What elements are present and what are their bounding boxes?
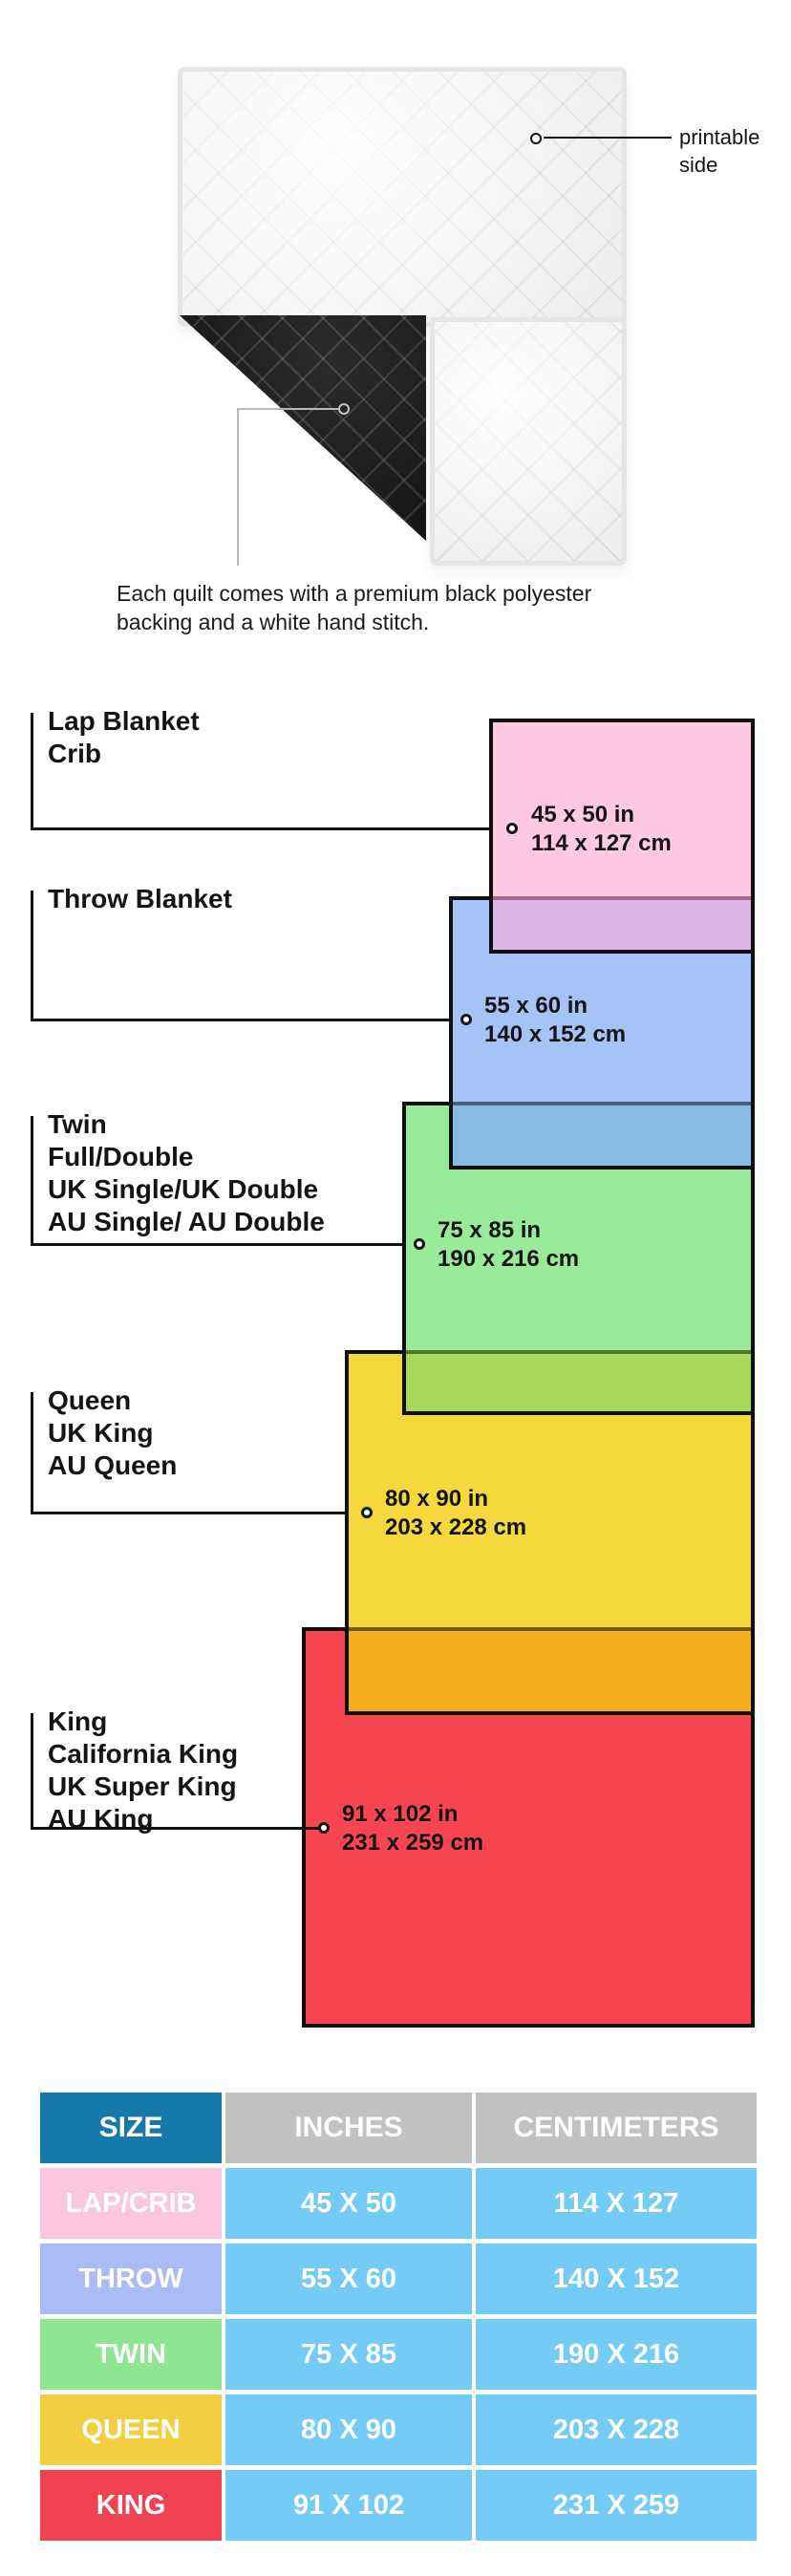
overlap-lap-throw [493,896,751,950]
printable-side-label-line2: side [679,151,759,179]
measure-throw-cm: 140 x 152 cm [484,1020,626,1049]
table-row-throw-size: THROW [40,2243,222,2314]
table-header-inches: INCHES [225,2093,472,2163]
printable-side-callout-line [544,137,672,139]
measure-twin: 75 x 85 in 190 x 216 cm [438,1216,579,1274]
label-twin-line1: Twin [48,1108,325,1141]
measure-king: 91 x 102 in 231 x 259 cm [342,1800,483,1857]
label-king-line3: UK Super King [48,1771,238,1803]
table-row-king-size: KING [40,2470,222,2541]
table-row-throw-inches: 55 X 60 [225,2243,472,2314]
callout-queen-dot-icon [361,1507,373,1518]
label-twin-line2: Full/Double [48,1141,325,1173]
printable-side-label-line1: printable [679,123,759,151]
table-row-twin-size: TWIN [40,2319,222,2390]
label-queen-line1: Queen [48,1385,177,1417]
backing-callout-line-vertical [237,408,239,566]
printable-side-marker-icon [530,133,542,144]
measure-throw: 55 x 60 in 140 x 152 cm [484,992,626,1049]
quilt-front-image [178,67,627,327]
label-throw-line1: Throw Blanket [48,883,232,915]
measure-king-cm: 231 x 259 cm [342,1829,483,1857]
table-row-twin-inches: 75 X 85 [225,2319,472,2390]
measure-king-in: 91 x 102 in [342,1800,483,1829]
callout-twin-vertical [31,1116,33,1243]
table-row-queen-inches: 80 X 90 [225,2394,472,2465]
overlap-twin-queen [406,1350,751,1411]
callout-throw-dot-icon [460,1014,472,1025]
printable-side-label: printable side [679,123,759,179]
callout-throw-horizontal [31,1019,460,1021]
label-lap: Lap Blanket Crib [48,705,200,770]
measure-throw-in: 55 x 60 in [484,992,626,1020]
label-twin: Twin Full/Double UK Single/UK Double AU … [48,1108,325,1238]
label-lap-line2: Crib [48,738,200,770]
callout-king-horizontal [31,1827,318,1830]
label-king-line2: California King [48,1738,238,1771]
backing-caption-line2: backing and a white hand stitch. [117,608,591,636]
callout-lap-horizontal [31,827,506,830]
measure-queen-in: 80 x 90 in [385,1485,526,1513]
callout-king-dot-icon [318,1822,330,1834]
label-king-line1: King [48,1706,238,1738]
label-king: King California King UK Super King AU Ki… [48,1706,238,1835]
callout-queen-vertical [31,1392,33,1512]
overlap-queen-king [349,1627,751,1711]
overlap-throw-twin [453,1102,751,1166]
backing-caption: Each quilt comes with a premium black po… [117,579,591,636]
label-twin-line3: UK Single/UK Double [48,1173,325,1206]
quilt-front-lower-edge [430,317,627,566]
measure-lap: 45 x 50 in 114 x 127 cm [531,801,672,858]
table-header-size: SIZE [40,2093,222,2163]
backing-callout-line-horizontal [238,408,340,410]
table-row-queen-size: QUEEN [40,2394,222,2465]
label-queen-line3: AU Queen [48,1449,177,1482]
callout-throw-vertical [31,891,33,1019]
callout-lap-vertical [31,713,33,828]
label-twin-line4: AU Single/ AU Double [48,1206,325,1238]
table-row-throw-cm: 140 X 152 [476,2243,757,2314]
callout-twin-horizontal [31,1243,414,1246]
table-row-lap-size: LAP/CRIB [40,2168,222,2239]
label-lap-line1: Lap Blanket [48,705,200,738]
table-row-twin-cm: 190 X 216 [476,2319,757,2390]
measure-lap-cm: 114 x 127 cm [531,829,672,858]
measure-queen: 80 x 90 in 203 x 228 cm [385,1485,526,1542]
callout-queen-horizontal [31,1512,361,1514]
callout-twin-dot-icon [414,1238,425,1250]
callout-lap-dot-icon [506,823,518,834]
callout-king-vertical [31,1713,33,1827]
measure-twin-in: 75 x 85 in [438,1216,579,1245]
table-row-king-inches: 91 X 102 [225,2470,472,2541]
backing-caption-line1: Each quilt comes with a premium black po… [117,579,591,608]
measure-queen-cm: 203 x 228 cm [385,1513,526,1542]
label-king-line4: AU King [48,1803,238,1835]
measure-twin-cm: 190 x 216 cm [438,1245,579,1274]
quilt-black-backing-fold [180,315,426,541]
table-row-queen-cm: 203 X 228 [476,2394,757,2465]
label-throw: Throw Blanket [48,883,232,915]
quilt-size-infographic: printable side Each quilt comes with a p… [0,0,791,2576]
table-row-lap-inches: 45 X 50 [225,2168,472,2239]
table-row-lap-cm: 114 X 127 [476,2168,757,2239]
table-row-king-cm: 231 X 259 [476,2470,757,2541]
measure-lap-in: 45 x 50 in [531,801,672,829]
label-queen-line2: UK King [48,1417,177,1449]
size-table: SIZE INCHES CENTIMETERS LAP/CRIB 45 X 50… [40,2093,757,2541]
table-header-centimeters: CENTIMETERS [476,2093,757,2163]
label-queen: Queen UK King AU Queen [48,1385,177,1482]
